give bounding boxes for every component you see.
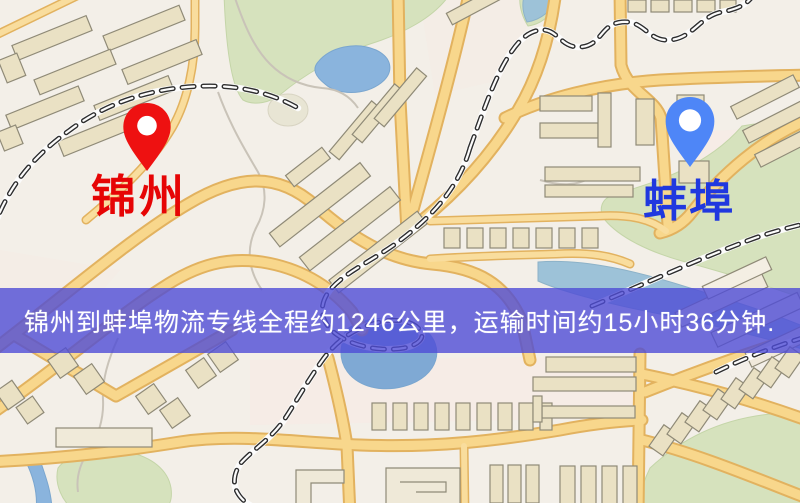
origin-city-label: 锦州	[91, 174, 187, 219]
origin-pin-body[interactable]	[123, 103, 170, 171]
origin-pin-hole	[137, 116, 157, 136]
map-screenshot: 锦州 蚌埠 锦州到蚌埠物流专线全程约1246公里，运输时间约15小时36分钟.	[0, 0, 800, 503]
destination-pin-hole	[679, 109, 701, 131]
map-image[interactable]	[0, 0, 800, 503]
origin-pin-icon[interactable]	[121, 102, 173, 172]
route-info-text: 锦州到蚌埠物流专线全程约1246公里，运输时间约15小时36分钟.	[0, 303, 775, 339]
destination-city-label: 蚌埠	[643, 180, 735, 224]
route-info-banner: 锦州到蚌埠物流专线全程约1246公里，运输时间约15小时36分钟.	[0, 288, 800, 353]
destination-pin-body[interactable]	[666, 97, 715, 167]
destination-pin-icon[interactable]	[663, 96, 717, 168]
